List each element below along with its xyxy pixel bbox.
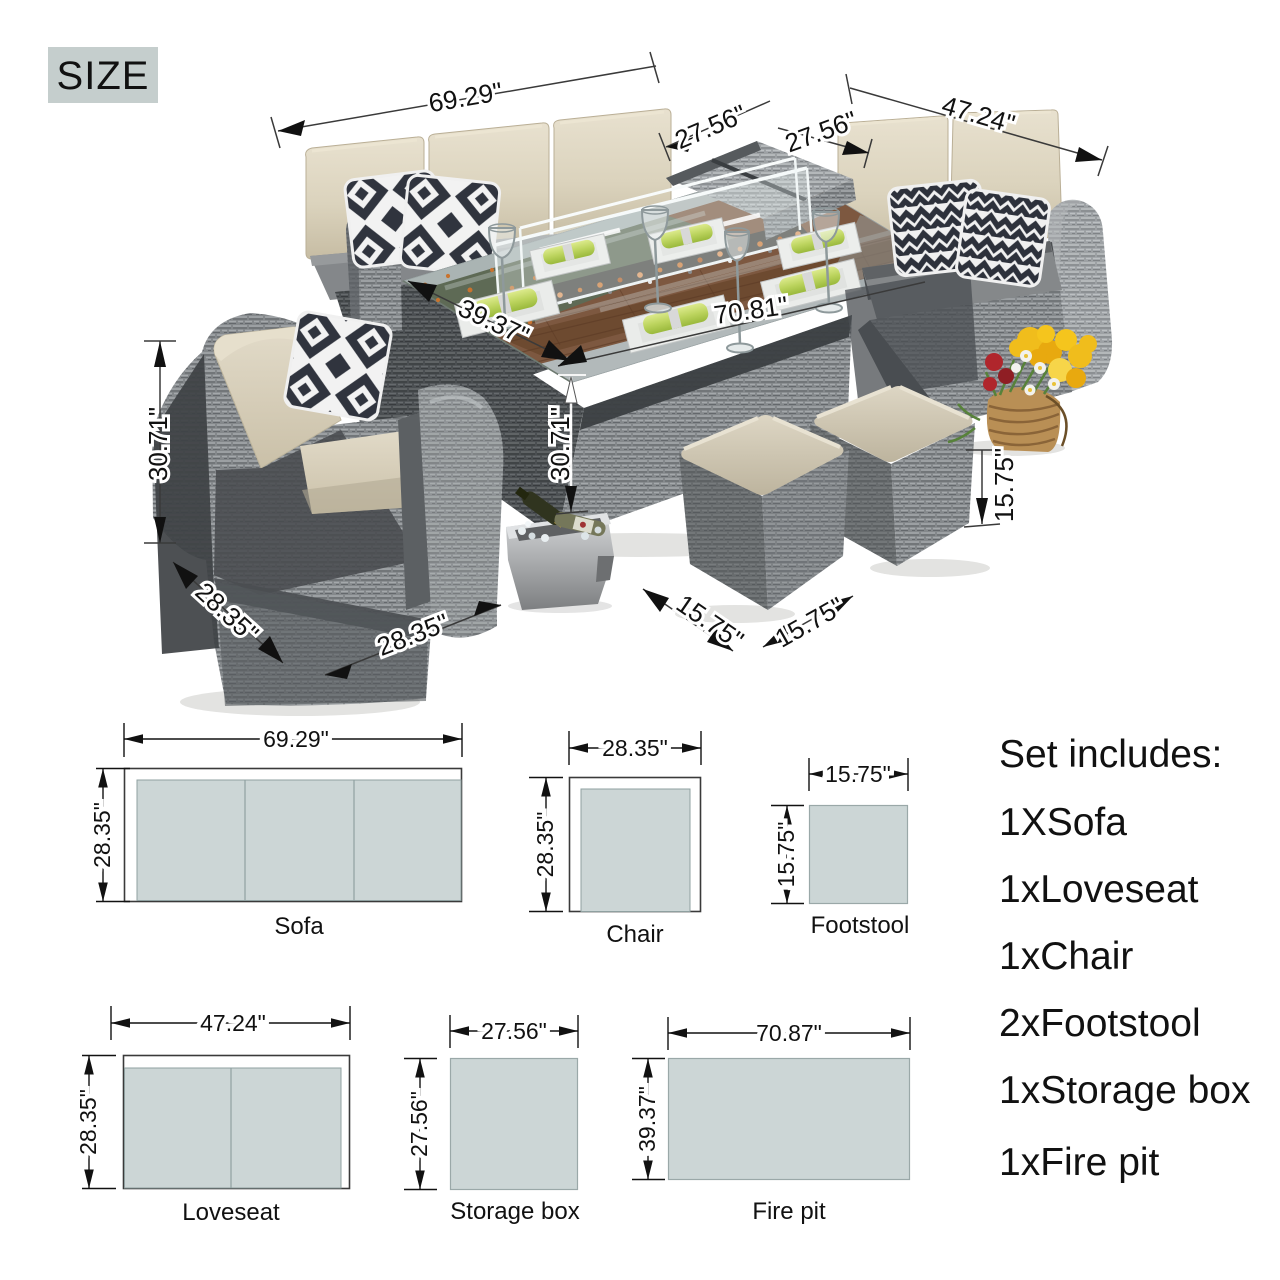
svg-text:1xLoveseat: 1xLoveseat	[999, 868, 1199, 911]
svg-text:69.29": 69.29"	[263, 726, 329, 752]
svg-text:39.37": 39.37"	[634, 1086, 660, 1152]
svg-text:1XSofa: 1XSofa	[999, 801, 1127, 844]
svg-text:70.87": 70.87"	[756, 1020, 822, 1046]
svg-text:15.75": 15.75"	[989, 448, 1019, 522]
svg-text:28.35": 28.35"	[75, 1089, 101, 1155]
svg-text:28.35": 28.35"	[89, 802, 115, 868]
svg-text:30.71": 30.71"	[143, 407, 173, 481]
svg-text:2xFootstool: 2xFootstool	[999, 1002, 1201, 1045]
svg-text:Footstool: Footstool	[811, 912, 910, 939]
svg-text:Storage box: Storage box	[450, 1198, 579, 1225]
svg-text:30.71": 30.71"	[545, 407, 575, 481]
svg-text:28.35": 28.35"	[532, 812, 558, 878]
svg-text:Sofa: Sofa	[274, 913, 324, 940]
svg-text:Fire pit: Fire pit	[752, 1198, 826, 1225]
svg-text:28.35": 28.35"	[602, 735, 668, 761]
svg-text:1xFire pit: 1xFire pit	[999, 1141, 1160, 1184]
svg-text:47.24": 47.24"	[200, 1010, 266, 1036]
svg-text:15.75": 15.75"	[825, 761, 891, 787]
svg-text:15.75": 15.75"	[773, 822, 799, 888]
svg-text:Loveseat: Loveseat	[182, 1199, 280, 1226]
svg-text:Chair: Chair	[606, 921, 663, 948]
svg-text:27.56": 27.56"	[481, 1018, 547, 1044]
svg-text:SIZE: SIZE	[57, 54, 150, 98]
svg-text:1xStorage box: 1xStorage box	[999, 1069, 1251, 1112]
svg-text:1xChair: 1xChair	[999, 935, 1133, 978]
svg-text:27.56": 27.56"	[406, 1091, 432, 1157]
svg-text:Set includes:: Set includes:	[999, 733, 1222, 776]
